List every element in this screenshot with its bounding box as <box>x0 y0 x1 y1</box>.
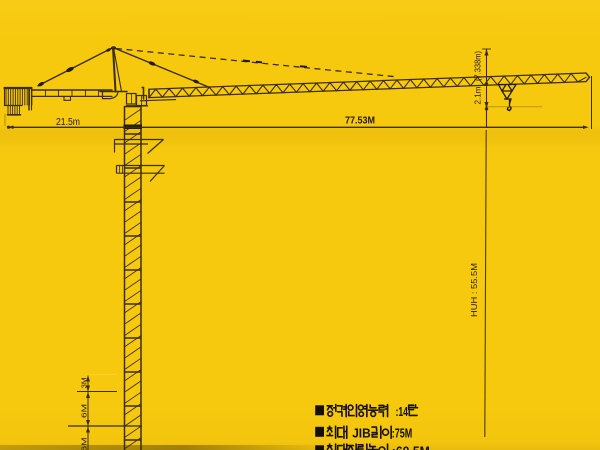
svg-text:HUH : 55.5M: HUH : 55.5M <box>469 263 479 317</box>
svg-text::75M: :75M <box>392 426 413 441</box>
svg-text:21.5m: 21.5m <box>56 117 80 128</box>
svg-text:(7.338m): (7.338m) <box>474 51 483 81</box>
svg-text:JIB: JIB <box>352 426 371 441</box>
svg-text:2.1m: 2.1m <box>474 86 483 104</box>
svg-text::60.5M: :60.5M <box>392 443 430 450</box>
svg-text:6M: 6M <box>79 438 88 450</box>
svg-text:3M: 3M <box>79 378 88 389</box>
svg-text::14: :14 <box>396 404 409 419</box>
svg-text:77.53M: 77.53M <box>345 116 375 127</box>
svg-text:6M: 6M <box>79 404 88 418</box>
